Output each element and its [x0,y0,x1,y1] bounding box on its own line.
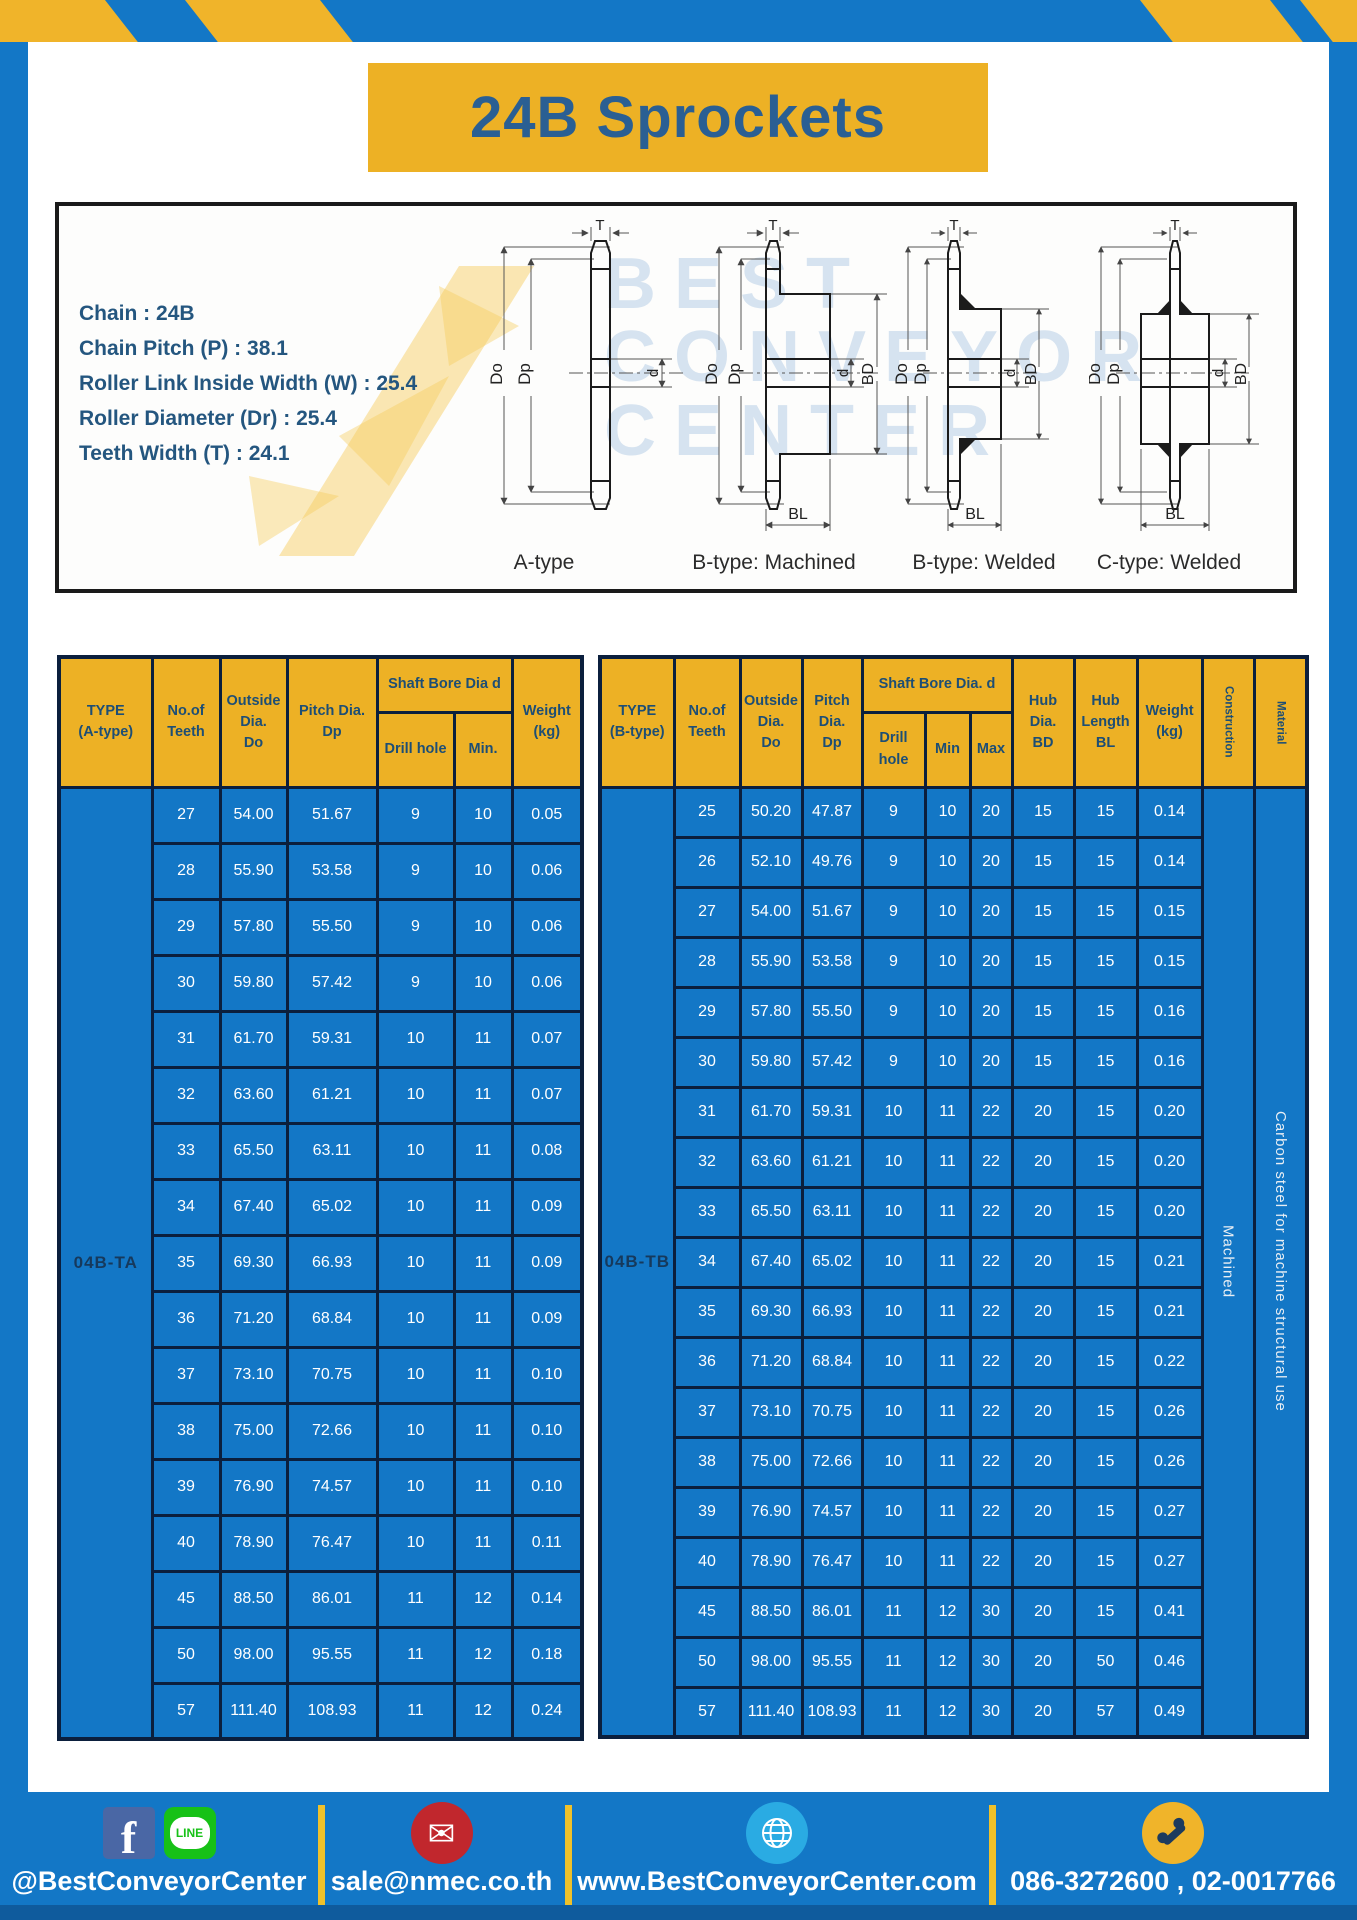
type-label: 04B-TA [59,787,152,1739]
table-cell: 10 [454,899,512,955]
table-cell: 73.10 [220,1347,287,1403]
table-cell: 10 [925,787,970,837]
table-cell: 55.50 [802,987,862,1037]
website-url[interactable]: www.BestConveyorCenter.com [577,1866,977,1897]
table-cell: 108.93 [287,1683,377,1739]
col-header-teeth: No.of Teeth [674,657,740,787]
facebook-icon[interactable]: f [103,1807,155,1859]
table-cell: 0.15 [1137,937,1202,987]
table-cell: 12 [454,1627,512,1683]
table-row: 3263.6061.2110112220150.20 [600,1137,1307,1187]
social-handle[interactable]: @BestConveyorCenter [12,1866,307,1897]
table-cell: 55.90 [220,843,287,899]
table-cell: 0.06 [512,899,582,955]
table-cell: 30 [970,1687,1012,1737]
svg-text:T: T [949,219,958,234]
table-cell: 20 [1012,1087,1074,1137]
table-cell: 63.60 [740,1137,802,1187]
table-cell: 9 [862,887,925,937]
type-label: 04B-TB [600,787,674,1737]
table-cell: 55.50 [287,899,377,955]
table-cell: 0.11 [512,1515,582,1571]
svg-text:d: d [835,369,852,377]
table-cell: 20 [1012,1537,1074,1587]
table-row: 2957.8055.509102015150.16 [600,987,1307,1037]
c-type-welded-label: C-type: Welded [1079,551,1259,581]
table-cell: 72.66 [287,1403,377,1459]
col-header-hub-dia: Hub Dia. BD [1012,657,1074,787]
table-cell: 29 [674,987,740,1037]
table-cell: 67.40 [220,1179,287,1235]
table-cell: 57.80 [740,987,802,1037]
table-cell: 11 [377,1627,454,1683]
table-cell: 0.16 [1137,987,1202,1037]
table-cell: 10 [377,1515,454,1571]
table-cell: 0.09 [512,1291,582,1347]
table-cell: 50 [1074,1637,1137,1687]
table-cell: 25 [674,787,740,837]
table-cell: 10 [862,1537,925,1587]
table-cell: 22 [970,1537,1012,1587]
table-cell: 10 [862,1187,925,1237]
table-cell: 10 [377,1459,454,1515]
table-cell: 26 [674,837,740,887]
catalog-page: 24B Sprockets BEST CONVEYOR CENTER Chain… [0,0,1357,1920]
table-cell: 28 [152,843,220,899]
table-cell: 52.10 [740,837,802,887]
table-cell: 0.46 [1137,1637,1202,1687]
table-cell: 22 [970,1287,1012,1337]
table-cell: 29 [152,899,220,955]
table-cell: 10 [925,1037,970,1087]
table-cell: 11 [925,1087,970,1137]
table-cell: 9 [377,787,454,843]
table-cell: 0.21 [1137,1237,1202,1287]
table-cell: 15 [1074,1587,1137,1637]
col-header-weight: Weight (kg) [512,657,582,787]
table-cell: 20 [1012,1487,1074,1537]
phone-icon[interactable] [1142,1802,1204,1864]
table-cell: 11 [454,1403,512,1459]
table-cell: 0.14 [1137,787,1202,837]
table-cell: 9 [862,1037,925,1087]
c-type-welded-drawing: T Do Dp d BD BL [1089,219,1269,549]
table-cell: 61.21 [802,1137,862,1187]
table-cell: 9 [377,899,454,955]
table-cell: 10 [925,987,970,1037]
table-cell: 30 [674,1037,740,1087]
table-cell: 0.06 [512,955,582,1011]
svg-text:Dp: Dp [911,363,930,385]
table-row: 3875.0072.6610112220150.26 [600,1437,1307,1487]
table-cell: 15 [1012,787,1074,837]
table-cell: 70.75 [802,1387,862,1437]
svg-text:BD: BD [1233,363,1250,385]
page-title: 24B Sprockets [470,84,886,151]
table-cell: 0.15 [1137,887,1202,937]
table-cell: 22 [970,1187,1012,1237]
table-cell: 20 [1012,1437,1074,1487]
table-cell: 88.50 [220,1571,287,1627]
table-cell: 31 [152,1011,220,1067]
table-cell: 15 [1074,1087,1137,1137]
top-decoration-band [0,0,1357,42]
table-cell: 10 [454,843,512,899]
table-cell: 98.00 [220,1627,287,1683]
table-cell: 69.30 [220,1235,287,1291]
table-cell: 35 [674,1287,740,1337]
table-cell: 71.20 [220,1291,287,1347]
table-cell: 0.26 [1137,1437,1202,1487]
svg-text:Dp: Dp [515,363,534,385]
table-cell: 20 [970,787,1012,837]
table-cell: 35 [152,1235,220,1291]
table-cell: 108.93 [802,1687,862,1737]
svg-text:T: T [595,219,604,234]
table-cell: 15 [1012,937,1074,987]
table-cell: 11 [454,1291,512,1347]
table-cell: 28 [674,937,740,987]
table-cell: 10 [377,1067,454,1123]
table-cell: 63.11 [287,1123,377,1179]
table-cell: 63.11 [802,1187,862,1237]
table-cell: 0.08 [512,1123,582,1179]
table-cell: 9 [862,937,925,987]
table-cell: 86.01 [287,1571,377,1627]
col-header-pitch-dia: Pitch Dia. Dp [802,657,862,787]
footer-email[interactable]: ✉ sale@nmec.co.th [318,1792,565,1920]
table-cell: 75.00 [740,1437,802,1487]
table-cell: 20 [1012,1187,1074,1237]
table-cell: 37 [152,1347,220,1403]
table-cell: 10 [377,1235,454,1291]
col-header-min: Min. [454,712,512,787]
footer-social[interactable]: f LINE @BestConveyorCenter [0,1792,318,1920]
col-header-outside-dia: Outside Dia. Do [740,657,802,787]
table-cell: 11 [377,1571,454,1627]
table-cell: 15 [1074,837,1137,887]
table-cell: 45 [152,1571,220,1627]
table-cell: 51.67 [287,787,377,843]
table-cell: 10 [862,1337,925,1387]
table-cell: 61.70 [220,1011,287,1067]
table-cell: 72.66 [802,1437,862,1487]
table-cell: 76.90 [740,1487,802,1537]
a-type-table: TYPE (A-type) No.of Teeth Outside Dia. D… [57,655,584,1741]
table-cell: 20 [1012,1637,1074,1687]
table-cell: 10 [862,1387,925,1437]
footer-bottom-edge [0,1905,1357,1920]
table-cell: 33 [152,1123,220,1179]
table-cell: 0.09 [512,1235,582,1291]
table-cell: 22 [970,1387,1012,1437]
table-row: 2855.9053.589102015150.15 [600,937,1307,987]
table-cell: 20 [1012,1287,1074,1337]
table-cell: 76.47 [287,1515,377,1571]
table-cell: 27 [152,787,220,843]
table-cell: 68.84 [287,1291,377,1347]
table-cell: 0.09 [512,1179,582,1235]
table-cell: 0.07 [512,1011,582,1067]
email-address[interactable]: sale@nmec.co.th [331,1866,552,1897]
table-cell: 22 [970,1337,1012,1387]
table-cell: 10 [377,1011,454,1067]
table-cell: 15 [1074,887,1137,937]
svg-text:Dp: Dp [725,363,744,385]
table-cell: 0.24 [512,1683,582,1739]
svg-text:BL: BL [965,506,985,523]
mail-icon[interactable]: ✉ [411,1802,473,1864]
col-header-shaft-bore: Shaft Bore Dia d [377,657,512,712]
svg-text:d: d [1002,369,1019,377]
table-cell: 0.14 [512,1571,582,1627]
table-cell: 11 [925,1337,970,1387]
construction-value: Machined [1202,787,1254,1737]
table-cell: 15 [1012,837,1074,887]
table-cell: 12 [925,1687,970,1737]
table-cell: 50.20 [740,787,802,837]
table-cell: 20 [970,937,1012,987]
table-cell: 11 [862,1687,925,1737]
table-cell: 0.22 [1137,1337,1202,1387]
table-cell: 22 [970,1087,1012,1137]
table-cell: 11 [925,1137,970,1187]
svg-text:BL: BL [788,506,808,523]
table-cell: 0.20 [1137,1087,1202,1137]
globe-icon[interactable] [746,1802,808,1864]
table-cell: 11 [377,1683,454,1739]
table-cell: 0.10 [512,1403,582,1459]
footer-website[interactable]: www.BestConveyorCenter.com [565,1792,989,1920]
table-cell: 11 [454,1123,512,1179]
col-header-type: TYPE (B-type) [600,657,674,787]
table-cell: 78.90 [220,1515,287,1571]
table-cell: 22 [970,1237,1012,1287]
table-cell: 15 [1074,987,1137,1037]
footer-phone[interactable]: 086-3272600 , 02-0017766 [989,1792,1357,1920]
table-cell: 59.80 [220,955,287,1011]
table-cell: 57.42 [802,1037,862,1087]
col-header-min: Min [925,712,970,787]
table-cell: 11 [925,1487,970,1537]
table-cell: 10 [862,1137,925,1187]
table-cell: 10 [377,1347,454,1403]
table-row: 3773.1070.7510112220150.26 [600,1387,1307,1437]
stripe-decoration [0,0,138,42]
table-cell: 38 [674,1437,740,1487]
table-cell: 15 [1074,1387,1137,1437]
table-cell: 11 [862,1587,925,1637]
table-cell: 95.55 [287,1627,377,1683]
table-cell: 9 [377,843,454,899]
table-cell: 68.84 [802,1337,862,1387]
col-header-max: Max [970,712,1012,787]
table-cell: 71.20 [740,1337,802,1387]
table-row: 57111.40108.9311123020570.49 [600,1687,1307,1737]
footer-bar: f LINE @BestConveyorCenter ✉ sale@nmec.c… [0,1792,1357,1920]
col-header-construction: Construction [1202,657,1254,787]
title-banner: 24B Sprockets [368,63,988,172]
col-header-material: Material [1254,657,1307,787]
table-cell: 11 [454,1235,512,1291]
table-cell: 0.26 [1137,1387,1202,1437]
table-cell: 10 [377,1179,454,1235]
svg-text:BD: BD [860,363,877,385]
table-row: 3569.3066.9310112220150.21 [600,1287,1307,1337]
table-cell: 0.05 [512,787,582,843]
table-cell: 9 [862,787,925,837]
table-row: 2652.1049.769102015150.14 [600,837,1307,887]
table-cell: 53.58 [287,843,377,899]
table-row: 3365.5063.1110112220150.20 [600,1187,1307,1237]
table-cell: 55.90 [740,937,802,987]
table-row: 4078.9076.4710112220150.27 [600,1537,1307,1587]
table-cell: 57.42 [287,955,377,1011]
svg-text:Do: Do [487,363,506,385]
table-cell: 11 [925,1187,970,1237]
table-row: 2754.0051.679102015150.15 [600,887,1307,937]
col-header-weight: Weight (kg) [1137,657,1202,787]
table-cell: 27 [674,887,740,937]
table-cell: 57 [152,1683,220,1739]
table-cell: 67.40 [740,1237,802,1287]
table-cell: 11 [925,1287,970,1337]
table-row: 3467.4065.0210112220150.21 [600,1237,1307,1287]
table-cell: 70.75 [287,1347,377,1403]
table-cell: 10 [454,787,512,843]
svg-text:d: d [1210,369,1227,377]
table-cell: 66.93 [802,1287,862,1337]
table-cell: 39 [152,1459,220,1515]
table-cell: 10 [377,1123,454,1179]
table-cell: 12 [454,1571,512,1627]
table-cell: 65.02 [802,1237,862,1287]
table-cell: 0.07 [512,1067,582,1123]
table-cell: 10 [862,1087,925,1137]
material-value: Carbon steel for machine structural use [1254,787,1307,1737]
col-header-outside-dia: Outside Dia. Do [220,657,287,787]
table-cell: 11 [925,1537,970,1587]
table-cell: 63.60 [220,1067,287,1123]
table-cell: 0.10 [512,1347,582,1403]
table-cell: 20 [1012,1587,1074,1637]
table-cell: 20 [1012,1337,1074,1387]
table-cell: 11 [925,1237,970,1287]
table-cell: 20 [970,887,1012,937]
table-cell: 65.50 [740,1187,802,1237]
a-type-label: A-type [434,551,654,581]
table-cell: 36 [152,1291,220,1347]
table-cell: 49.76 [802,837,862,887]
table-cell: 57 [1074,1687,1137,1737]
col-header-drill-hole: Drill hole [377,712,454,787]
stripe-decoration [1300,0,1357,42]
table-cell: 74.57 [802,1487,862,1537]
table-cell: 74.57 [287,1459,377,1515]
table-cell: 78.90 [740,1537,802,1587]
table-cell: 0.49 [1137,1687,1202,1737]
svg-text:Dp: Dp [1104,363,1123,385]
col-header-drill-hole: Drill hole [862,712,925,787]
table-cell: 11 [454,1515,512,1571]
table-cell: 57.80 [220,899,287,955]
table-row: 3161.7059.3110112220150.20 [600,1087,1307,1137]
table-cell: 10 [862,1287,925,1337]
table-cell: 15 [1074,1337,1137,1387]
table-cell: 53.58 [802,937,862,987]
table-cell: 59.31 [287,1011,377,1067]
table-cell: 15 [1074,1187,1137,1237]
table-row: 3671.2068.8410112220150.22 [600,1337,1307,1387]
table-cell: 32 [674,1137,740,1187]
table-cell: 0.06 [512,843,582,899]
table-cell: 36 [674,1337,740,1387]
svg-text:Do: Do [1089,363,1104,385]
table-cell: 0.20 [1137,1187,1202,1237]
table-cell: 32 [152,1067,220,1123]
table-cell: 15 [1012,987,1074,1037]
table-cell: 22 [970,1437,1012,1487]
diagram-panel: BEST CONVEYOR CENTER Chain : 24B Chain P… [55,202,1297,593]
table-cell: 39 [674,1487,740,1537]
table-cell: 0.18 [512,1627,582,1683]
table-cell: 30 [970,1637,1012,1687]
table-cell: 61.70 [740,1087,802,1137]
table-cell: 11 [925,1437,970,1487]
table-cell: 86.01 [802,1587,862,1637]
table-cell: 10 [862,1237,925,1287]
table-cell: 11 [862,1637,925,1687]
table-cell: 34 [152,1179,220,1235]
table-cell: 54.00 [740,887,802,937]
table-row: 04B-TA2754.0051.679100.05 [59,787,582,843]
table-cell: 0.27 [1137,1487,1202,1537]
table-cell: 15 [1012,887,1074,937]
stripe-decoration [185,0,353,42]
b-type-welded-drawing: T Do Dp d BD BL [889,219,1059,549]
table-cell: 65.02 [287,1179,377,1235]
table-cell: 11 [454,1067,512,1123]
table-cell: 0.21 [1137,1287,1202,1337]
table-cell: 20 [1012,1387,1074,1437]
table-cell: 10 [377,1291,454,1347]
table-cell: 0.20 [1137,1137,1202,1187]
table-cell: 40 [152,1515,220,1571]
table-cell: 59.80 [740,1037,802,1087]
svg-text:T: T [1170,219,1179,234]
table-cell: 11 [454,1459,512,1515]
table-cell: 75.00 [220,1403,287,1459]
col-header-pitch-dia: Pitch Dia. Dp [287,657,377,787]
table-cell: 20 [970,837,1012,887]
table-cell: 22 [970,1137,1012,1187]
line-icon[interactable]: LINE [164,1807,216,1859]
table-cell: 61.21 [287,1067,377,1123]
svg-text:Do: Do [702,363,721,385]
table-cell: 59.31 [802,1087,862,1137]
phone-numbers[interactable]: 086-3272600 , 02-0017766 [1010,1866,1336,1897]
table-cell: 10 [925,937,970,987]
table-cell: 11 [454,1011,512,1067]
table-cell: 66.93 [287,1235,377,1291]
table-cell: 33 [674,1187,740,1237]
table-cell: 10 [925,887,970,937]
col-header-shaft-bore: Shaft Bore Dia. d [862,657,1012,712]
b-type-welded-label: B-type: Welded [904,551,1064,581]
table-cell: 0.41 [1137,1587,1202,1637]
table-row: 3976.9074.5710112220150.27 [600,1487,1307,1537]
table-cell: 20 [970,1037,1012,1087]
